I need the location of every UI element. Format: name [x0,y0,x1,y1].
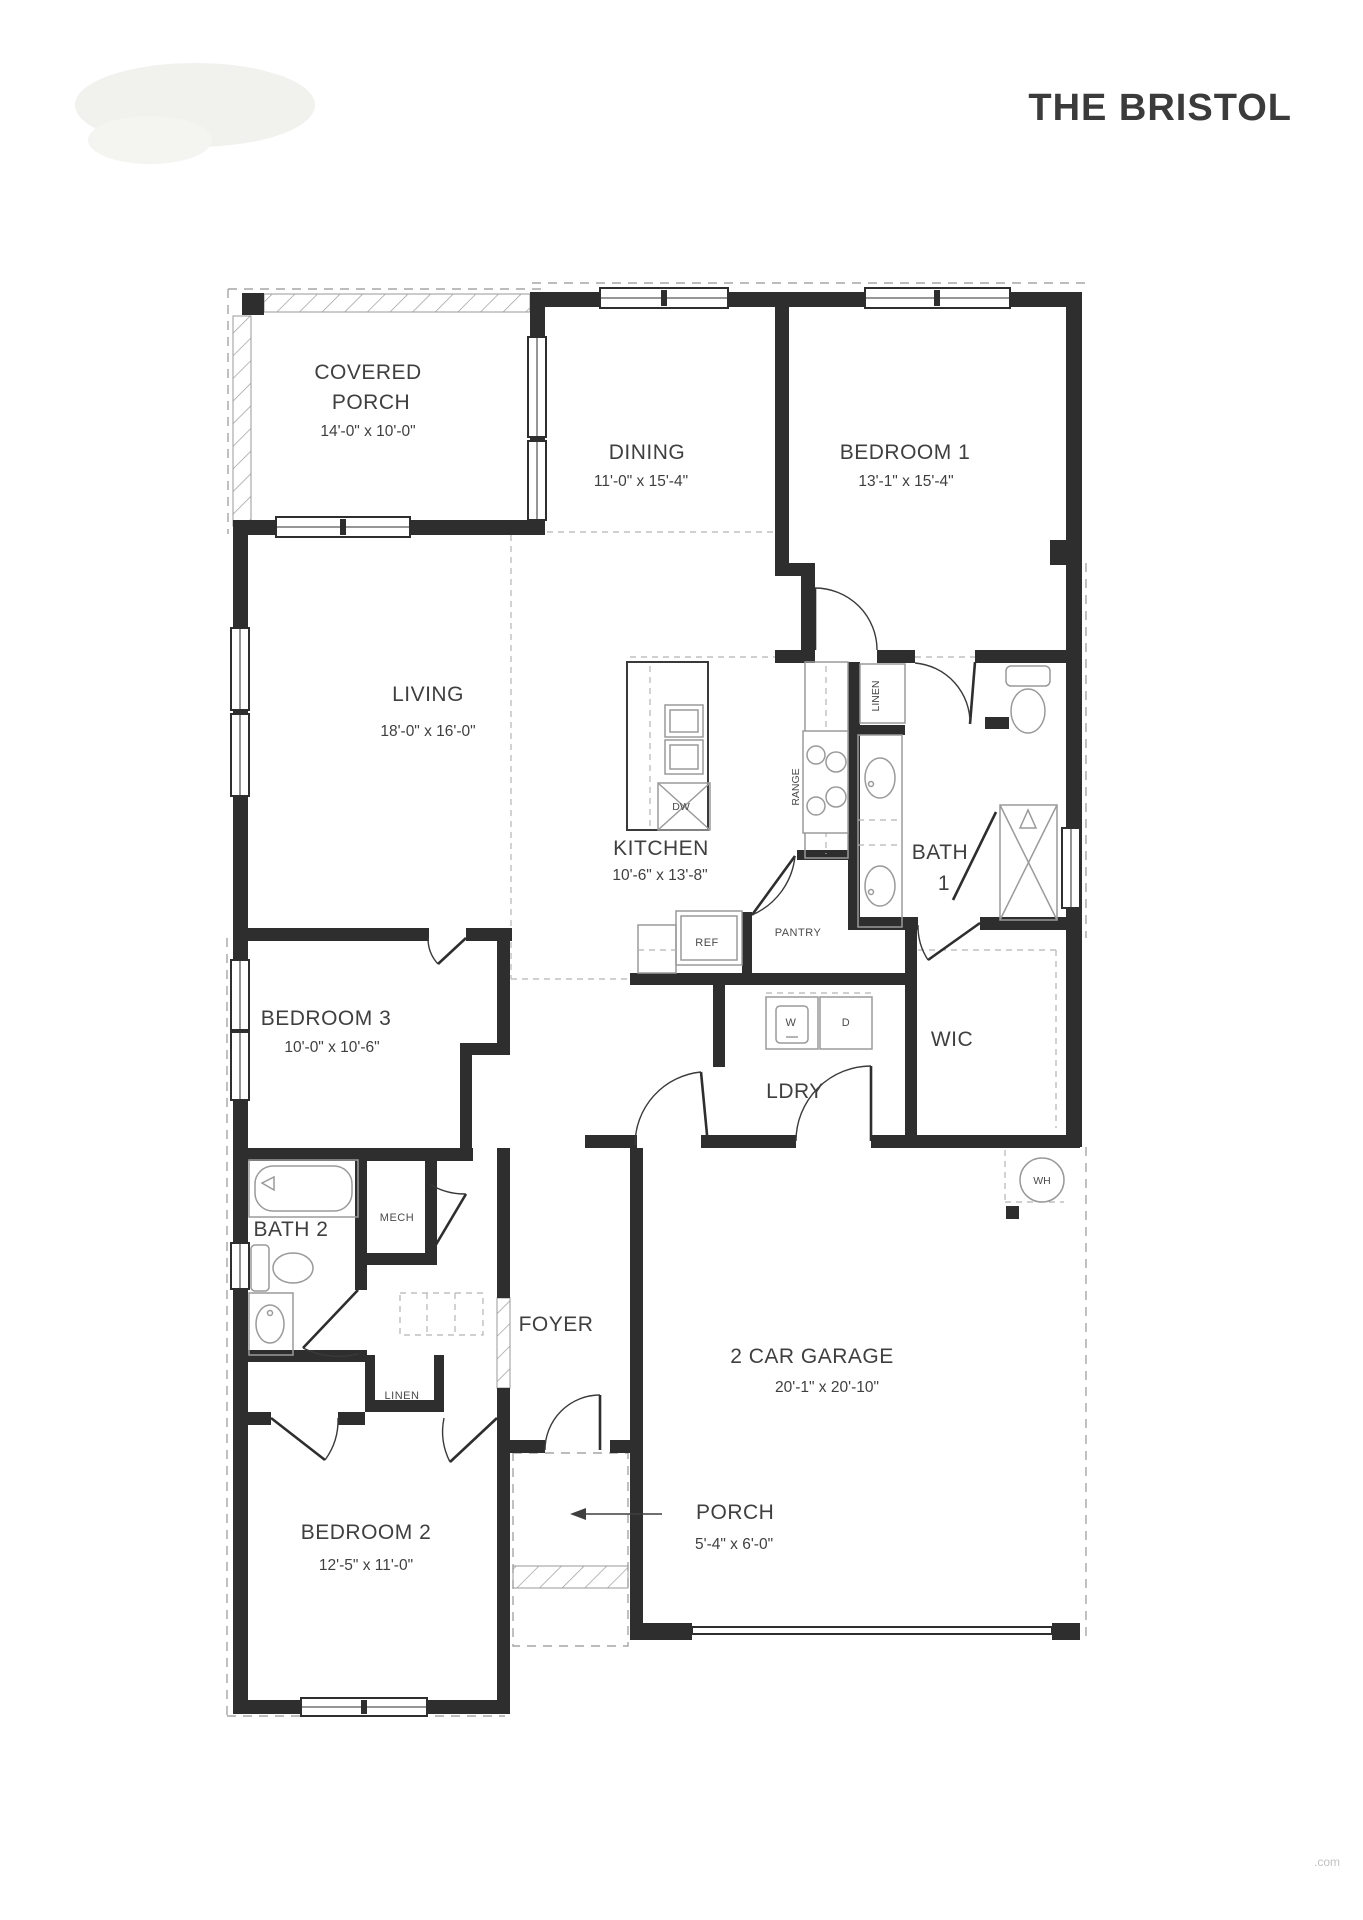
bath2-window [231,1243,249,1289]
garage-post [1006,1206,1019,1219]
porch-arrow [570,1508,662,1520]
range-label: RANGE [790,768,802,805]
bath1-vanity [858,735,902,927]
covered-porch-dims: 14'-0" x 10'-0" [320,423,415,440]
foyer-console [400,1293,483,1335]
windows [231,288,1080,1716]
watermark: .com [1314,1855,1340,1869]
bedroom3-door [428,938,466,964]
bedroom2-window [301,1698,427,1716]
bedroom3-label: BEDROOM 3 [261,1007,392,1030]
wh-label: WH [1033,1175,1051,1187]
living-dims: 18'-0" x 16'-0" [380,723,475,740]
bedroom1-label: BEDROOM 1 [840,441,971,464]
linen-bath1-label: LINEN [870,681,882,712]
garage-label: 2 CAR GARAGE [730,1345,894,1368]
kitchen-label: KITCHEN [613,837,709,860]
pantry-label: PANTRY [775,927,822,939]
living-west-window-b [231,714,249,796]
bath2-fixtures [249,1160,358,1355]
front-door [545,1395,600,1450]
mech-label: MECH [380,1212,414,1224]
bath1-door [915,662,975,724]
bedroom3-window-a [231,960,249,1030]
floor-plan-page: THE BRISTOL COVERED PORCH 14'-0" x 10'-0… [0,0,1363,1920]
laundry-fixtures [766,997,872,1049]
dining-side-window-a [528,337,546,437]
porch-label: PORCH [696,1501,774,1524]
pantry-door [752,856,795,915]
bedroom3-dims: 10'-0" x 10'-6" [284,1039,379,1056]
toilet-icon-bath2 [251,1245,313,1291]
walls [233,292,1082,1714]
dining-label: DINING [609,441,686,464]
ldry-garage-door [796,1066,871,1141]
bedroom2-label: BEDROOM 2 [301,1521,432,1544]
bath1-wic-door [918,923,980,960]
living-north-window [276,517,410,537]
kitchen-sink [665,705,703,774]
bath2-vanity [249,1293,293,1355]
dashed-reference-lines [227,283,1086,1716]
porch-dims: 5'-4" x 6'-0" [695,1536,773,1553]
dining-side-window-b [528,441,546,520]
scan-artifact [75,63,315,164]
wic-label: WIC [931,1028,973,1051]
covered-porch-label-2: PORCH [332,391,410,414]
bath1-label-2: 1 [938,872,950,895]
covered-porch-label-1: COVERED [314,361,421,384]
bath1-label-1: BATH [912,841,968,864]
bedroom3-window-b [231,1032,249,1100]
bath2-label: BATH 2 [254,1218,329,1241]
tub-icon [249,1160,358,1217]
garage-fixtures [1006,1158,1064,1219]
hall-ldry-door [635,1072,708,1145]
foyer-label: FOYER [519,1313,594,1336]
bath2-door [303,1290,358,1356]
living-west-window-a [231,628,249,710]
range-cooktop [803,731,848,833]
bedroom2-dims: 12'-5" x 11'-0" [319,1557,413,1574]
linen-hall-label: LINEN [385,1390,420,1402]
bedroom2-door [271,1418,338,1460]
dryer-label: D [842,1017,850,1029]
garage-dims: 20'-1" x 20'-10" [775,1379,879,1396]
bath1-window [1062,828,1080,908]
toilet-icon-bath1 [1006,666,1050,733]
kitchen-dims: 10'-6" x 13'-8" [612,867,707,884]
living-label: LIVING [392,683,464,706]
bath1-fixtures [858,664,1057,927]
bedroom2-door-2 [443,1418,497,1462]
bedroom1-door [815,588,877,650]
dining-dims: 11'-0" x 15'-4" [594,473,688,490]
bedroom1-dims: 13'-1" x 15'-4" [858,473,953,490]
floor-plan-drawing: THE BRISTOL COVERED PORCH 14'-0" x 10'-0… [0,0,1363,1920]
dw-label: DW [672,801,690,813]
page-title: THE BRISTOL [1028,87,1292,129]
dining-window [600,288,728,308]
linen-closet-bath1 [860,664,905,723]
shower-icon [1000,805,1057,920]
kitchen-cabinet [638,925,676,973]
bedroom1-window [865,288,1010,308]
ldry-label: LDRY [766,1080,824,1103]
garage-door [692,1627,1052,1634]
washer-label: W [786,1017,797,1029]
ref-label: REF [695,937,719,949]
